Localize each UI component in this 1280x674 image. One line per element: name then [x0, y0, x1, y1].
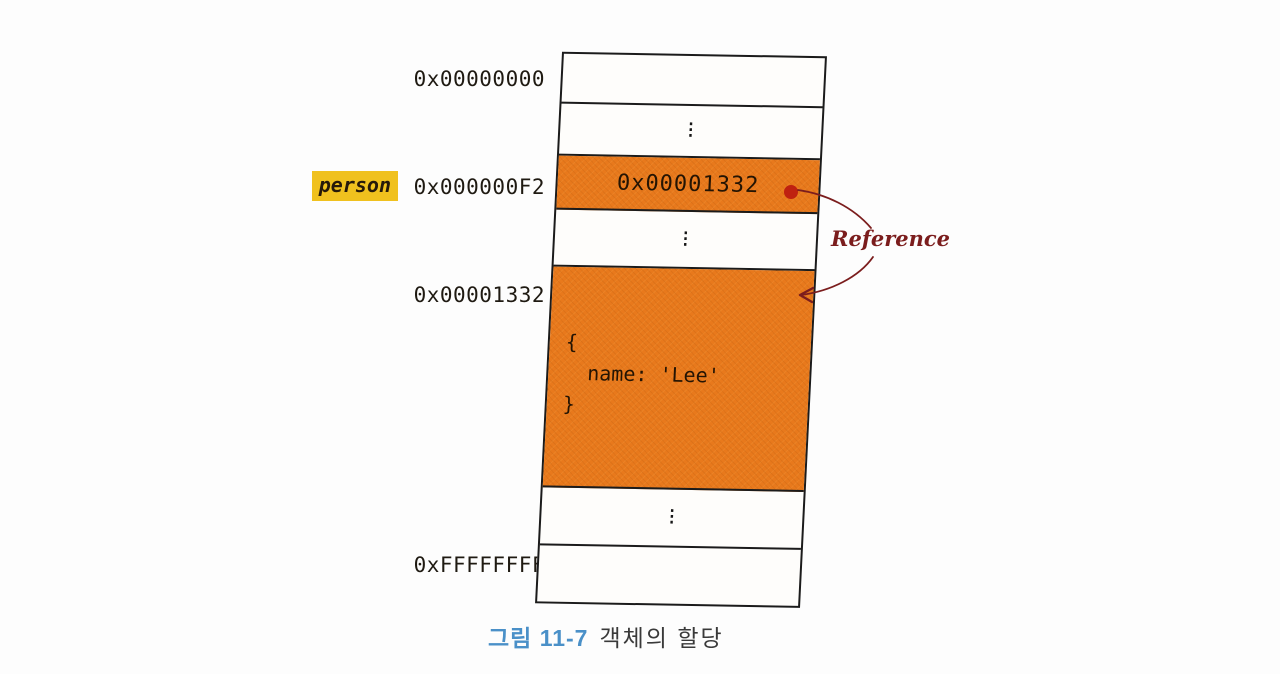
memory-stack: ⋮ 0x00001332 ⋮ { name: 'Lee' } ⋮ [535, 52, 827, 608]
memory-cell-object: { name: 'Lee' } [543, 267, 815, 492]
memory-cell-empty-bottom [537, 545, 801, 606]
memory-cell-ellipsis-2: ⋮ [554, 210, 818, 272]
memory-cell-ellipsis-3: ⋮ [540, 487, 804, 550]
ellipsis-glyph: ⋮ [663, 510, 681, 526]
address-label-bottom: 0xFFFFFFFF [414, 553, 545, 577]
figure-caption: 그림 11-7객체의 할당 [488, 619, 724, 653]
pointer-value-text: 0x00001332 [616, 170, 760, 197]
address-label-person: 0x000000F2 [414, 175, 545, 199]
caption-number: 그림 11-7 [488, 625, 588, 651]
object-close-brace: } [562, 389, 719, 423]
figure-canvas: 0x00000000 person 0x000000F2 0x00001332 … [0, 0, 1280, 674]
variable-label-person: person [312, 171, 398, 201]
reference-label: Reference [831, 226, 950, 251]
object-property-line: name: 'Lee' [564, 358, 721, 392]
address-label-top: 0x00000000 [414, 67, 545, 91]
memory-cell-pointer: 0x00001332 [556, 156, 820, 215]
ellipsis-glyph: ⋮ [677, 232, 695, 248]
address-label-object: 0x00001332 [414, 283, 545, 307]
object-open-brace: { [565, 327, 722, 361]
memory-cell-empty-top [561, 54, 824, 109]
object-literal-block: { name: 'Lee' } [562, 327, 722, 423]
caption-title: 객체의 할당 [599, 625, 723, 651]
ellipsis-glyph: ⋮ [682, 123, 700, 139]
memory-cell-ellipsis-1: ⋮ [559, 104, 823, 161]
